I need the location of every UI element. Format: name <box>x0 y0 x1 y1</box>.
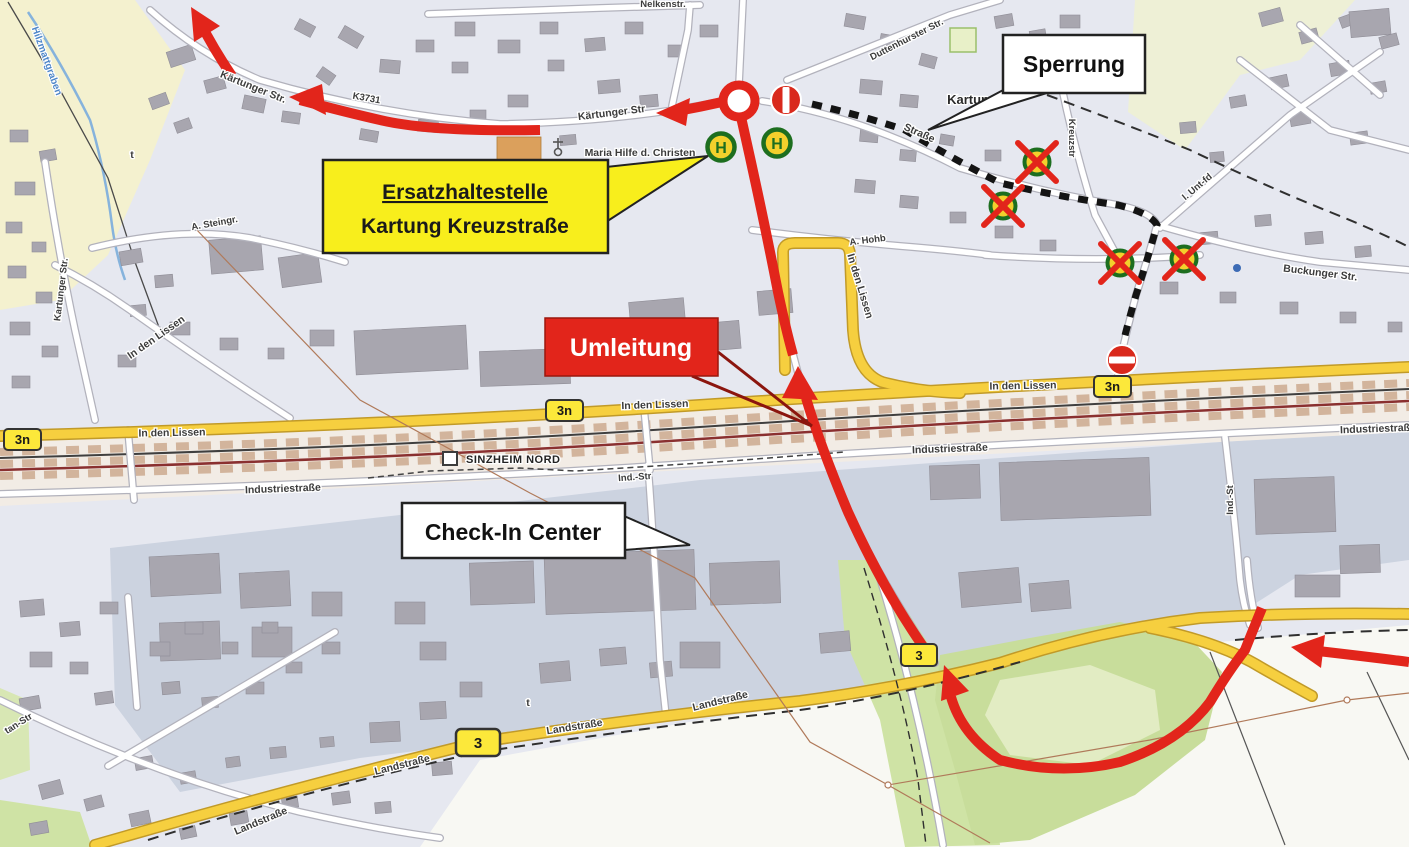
building <box>354 325 468 375</box>
building <box>220 338 238 350</box>
street-label: In den Lissen <box>138 426 205 439</box>
building <box>375 801 392 813</box>
street-label: Industriestraße <box>1340 422 1409 437</box>
detour-map: H H HHHH SINZHEIM NORD Kärtunger Str. K3… <box>0 0 1409 847</box>
building <box>331 791 350 805</box>
building <box>10 322 30 335</box>
map-symbol-t2: t <box>526 697 530 709</box>
building <box>19 599 44 617</box>
building <box>185 622 203 634</box>
building <box>416 40 434 52</box>
bus-stop-closed: H <box>1101 244 1139 282</box>
building <box>1355 245 1372 257</box>
building <box>709 561 780 605</box>
building <box>929 464 980 500</box>
building <box>320 736 335 747</box>
bus-stop-open-1: H <box>708 134 735 161</box>
building <box>1305 231 1324 245</box>
bus-stop-letter: H <box>771 136 783 153</box>
bus-stop-letter: H <box>715 140 727 157</box>
roundabout-icon <box>723 85 755 117</box>
building <box>540 22 558 34</box>
badge-3-west: 3 <box>456 729 500 756</box>
bus-stop-closed: H <box>1165 240 1203 278</box>
building <box>548 60 564 71</box>
building <box>452 62 468 73</box>
building <box>680 642 720 668</box>
building <box>859 79 882 95</box>
poi-dot-blue <box>1233 264 1241 272</box>
check-in-label: Check-In Center <box>425 519 601 545</box>
building <box>1180 121 1197 133</box>
building <box>1349 8 1391 37</box>
building <box>1254 477 1336 535</box>
building <box>420 701 447 719</box>
ersatzhaltestelle-box <box>323 160 608 253</box>
map-image: H H HHHH SINZHEIM NORD Kärtunger Str. K3… <box>0 0 1409 847</box>
bus-stop-closed: H <box>1018 143 1056 181</box>
building <box>6 222 22 233</box>
building <box>268 348 284 359</box>
building <box>469 561 534 605</box>
building <box>854 179 875 194</box>
street-label: Ind.-Str <box>618 471 652 484</box>
badge-3-east: 3 <box>901 644 937 666</box>
building <box>1160 282 1178 294</box>
building <box>959 567 1022 607</box>
building <box>100 602 118 614</box>
bus-stop-closed: H <box>984 187 1022 225</box>
building <box>155 274 174 288</box>
building <box>1340 312 1356 323</box>
building <box>8 266 26 278</box>
building <box>455 22 475 36</box>
building <box>597 79 620 94</box>
building <box>59 621 80 637</box>
building <box>322 642 340 654</box>
building <box>599 647 626 666</box>
building <box>539 661 571 684</box>
building <box>1280 302 1298 314</box>
building <box>1060 15 1080 28</box>
building <box>420 642 446 660</box>
building <box>460 682 482 697</box>
street-label: Kreuzstr <box>1066 119 1077 158</box>
poi-label-church: Maria Hilfe d. Christen <box>585 147 696 159</box>
callout-umleitung: Umleitung <box>545 318 718 376</box>
building <box>150 642 170 656</box>
no-entry-sign-south <box>1107 345 1137 375</box>
badge-3n-mid: 3n <box>546 400 583 421</box>
svg-text:3n: 3n <box>15 432 30 447</box>
building <box>262 622 278 633</box>
building <box>498 40 520 53</box>
badge-3n-left: 3n <box>4 429 41 450</box>
building <box>1229 95 1247 109</box>
building <box>270 746 287 758</box>
building <box>1388 322 1402 332</box>
building <box>225 756 240 768</box>
building <box>395 602 425 624</box>
building <box>12 376 30 388</box>
building <box>36 292 52 303</box>
bus-stop-open-2: H <box>764 130 791 157</box>
building <box>10 130 28 142</box>
building <box>312 592 342 616</box>
station-label: SINZHEIM NORD <box>466 454 561 466</box>
street-label: In den Lissen <box>621 398 688 412</box>
no-entry-sign-top <box>771 85 801 115</box>
svg-text:3: 3 <box>474 735 482 752</box>
sperrung-label: Sperrung <box>1023 51 1125 77</box>
building <box>369 721 400 743</box>
ersatzhaltestelle-line1: Ersatzhaltestelle <box>382 181 548 204</box>
building <box>149 553 221 597</box>
building <box>560 134 577 145</box>
svg-text:3n: 3n <box>1105 379 1120 394</box>
building <box>985 150 1001 161</box>
building <box>1255 214 1272 226</box>
building <box>700 25 718 37</box>
building <box>1040 240 1056 251</box>
building <box>239 571 291 609</box>
building <box>819 631 851 654</box>
building <box>584 37 605 52</box>
playground-area <box>950 28 976 52</box>
map-symbol-t1: t <box>130 149 134 161</box>
street-label: Nelkenstr. <box>640 0 685 10</box>
building <box>900 94 919 108</box>
umleitung-label: Umleitung <box>570 334 692 362</box>
building <box>431 761 452 776</box>
building <box>310 330 334 346</box>
building <box>222 642 238 654</box>
building <box>1220 292 1236 303</box>
building <box>30 652 52 667</box>
building <box>1295 575 1340 597</box>
badge-3n-right: 3n <box>1094 376 1131 397</box>
building <box>42 346 58 357</box>
street-label: Ind.-St <box>1225 484 1236 514</box>
building <box>70 662 88 674</box>
building <box>508 95 528 107</box>
street-label: In den Lissen <box>989 379 1056 392</box>
building <box>278 252 322 287</box>
building <box>162 681 181 695</box>
svg-text:3: 3 <box>915 648 922 663</box>
building <box>32 242 46 252</box>
building <box>1029 580 1071 611</box>
building <box>281 111 300 124</box>
building <box>94 691 113 705</box>
svg-text:3n: 3n <box>557 403 572 418</box>
building <box>625 22 643 34</box>
building <box>900 195 919 209</box>
building <box>15 182 35 195</box>
building <box>1340 544 1381 573</box>
building <box>939 134 955 146</box>
ersatzhaltestelle-line2: Kartung Kreuzstraße <box>361 215 569 238</box>
building <box>379 59 400 74</box>
building <box>995 226 1013 238</box>
building <box>950 212 966 223</box>
station-icon <box>443 452 457 465</box>
building <box>900 149 917 161</box>
building <box>1210 151 1225 162</box>
building <box>999 457 1151 520</box>
